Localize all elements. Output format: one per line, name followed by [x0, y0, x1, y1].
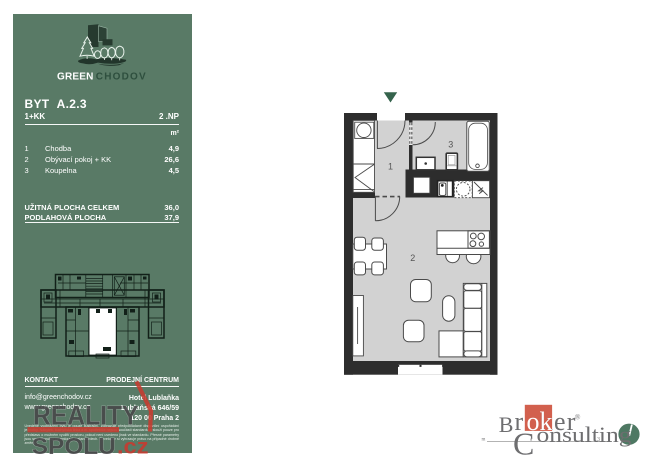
svg-text:B: B	[499, 412, 514, 437]
svg-text:C: C	[513, 426, 534, 462]
svg-text:m: m	[482, 437, 486, 442]
svg-text:GREEN: GREEN	[57, 71, 94, 82]
svg-text:onsulting: onsulting	[537, 422, 632, 447]
svg-text:CHODOV: CHODOV	[96, 71, 147, 82]
svg-text:REALITY: REALITY	[33, 401, 139, 431]
svg-text:2: 2	[410, 253, 415, 263]
svg-text:1: 1	[388, 162, 393, 172]
svg-text:®: ®	[575, 413, 581, 422]
svg-text:.cz: .cz	[117, 436, 149, 459]
svg-text:3: 3	[448, 139, 453, 149]
svg-text:SPOLU: SPOLU	[32, 433, 116, 459]
